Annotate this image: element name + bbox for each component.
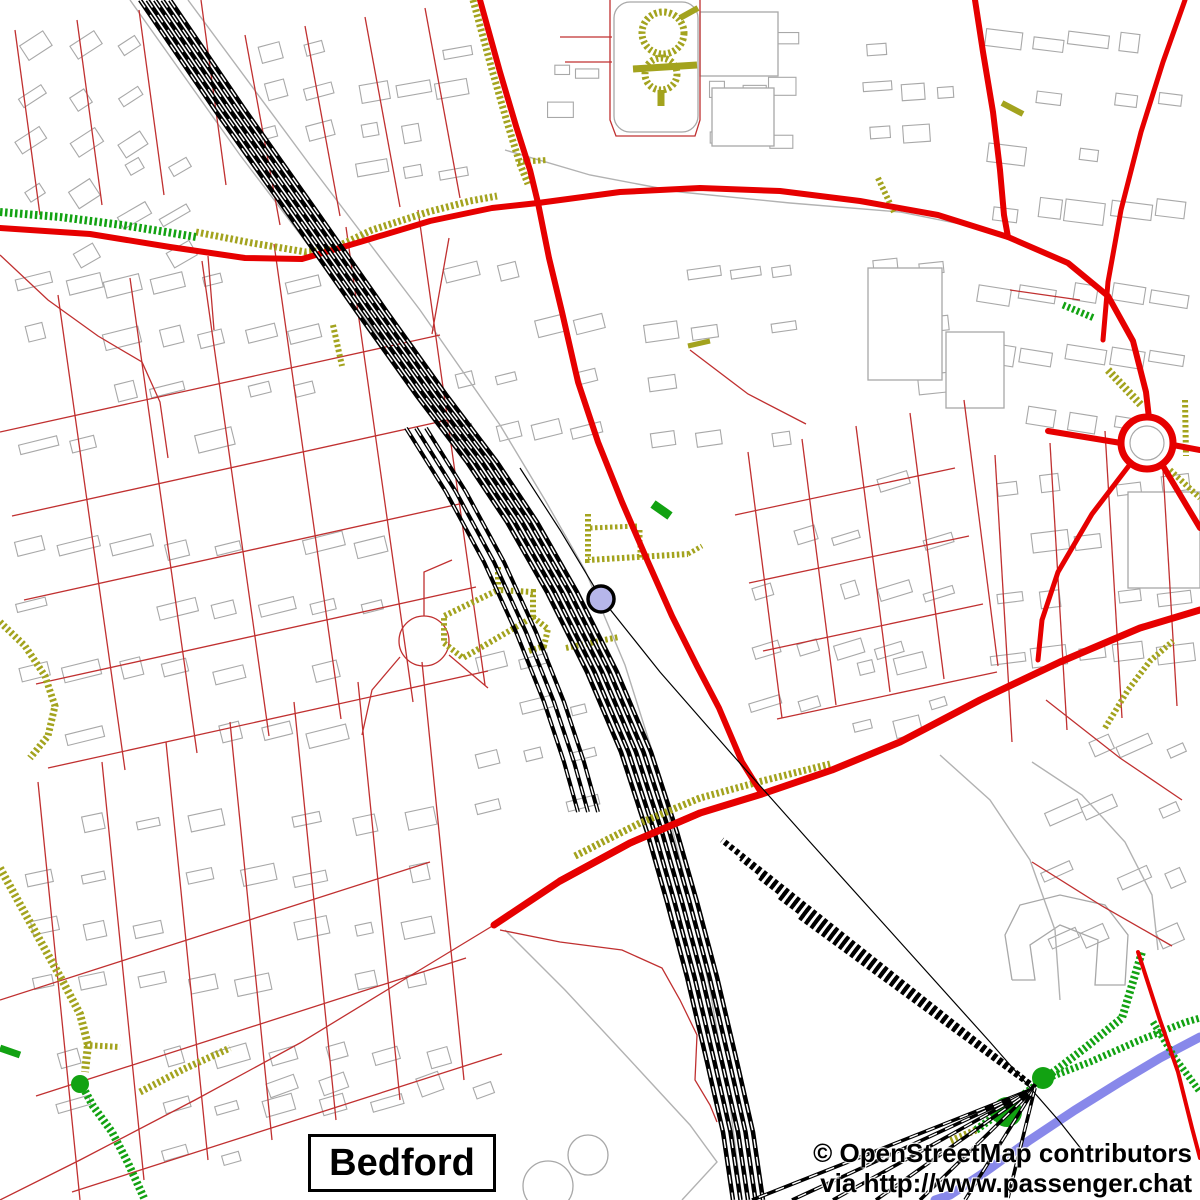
place-label-text: Bedford bbox=[329, 1142, 475, 1185]
attribution-copyright: © OpenStreetMap contributors bbox=[813, 1138, 1192, 1168]
attribution-url: via http://www.passenger.chat bbox=[813, 1168, 1192, 1198]
map-attribution: © OpenStreetMap contributors via http://… bbox=[813, 1138, 1192, 1198]
map-viewport[interactable]: Bedford © OpenStreetMap contributors via… bbox=[0, 0, 1200, 1200]
place-label-box: Bedford bbox=[308, 1134, 496, 1192]
map-canvas[interactable] bbox=[0, 0, 1200, 1200]
station-marker[interactable] bbox=[588, 586, 614, 612]
